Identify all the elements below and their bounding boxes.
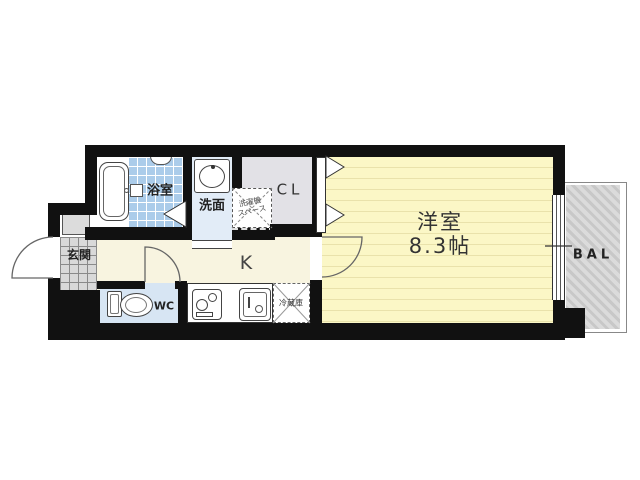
fridge-label: 冷蔵庫 [279,298,303,307]
entrance-label: 玄関 [67,249,91,263]
closet-label: CL [277,181,304,198]
door-swing-overlay [0,0,640,480]
main-room-door-arc [322,237,362,277]
main-room-size: 8.3帖 [409,234,471,258]
main-room-name: 洋室 [417,210,463,234]
entrance-door-arc [12,237,53,278]
main-room-label: 洋室 8.3帖 [409,210,471,258]
closet-folding-door-top [326,156,344,178]
balcony-label: BAL [573,249,613,264]
washroom-label: 洗面 [199,200,225,215]
kitchen-label: K [240,253,252,275]
bathroom-label: 浴室 [147,185,173,200]
toilet-door-arc [145,247,180,282]
bathroom-folding-door [164,201,186,227]
closet-folding-door-bottom [326,204,344,226]
toilet-label: WC [154,301,174,314]
floor-plan: 浴室 洗面 洗濯機 スペース CL 玄関 K WC 冷蔵庫 洋室 8.3帖 BA… [0,0,640,480]
